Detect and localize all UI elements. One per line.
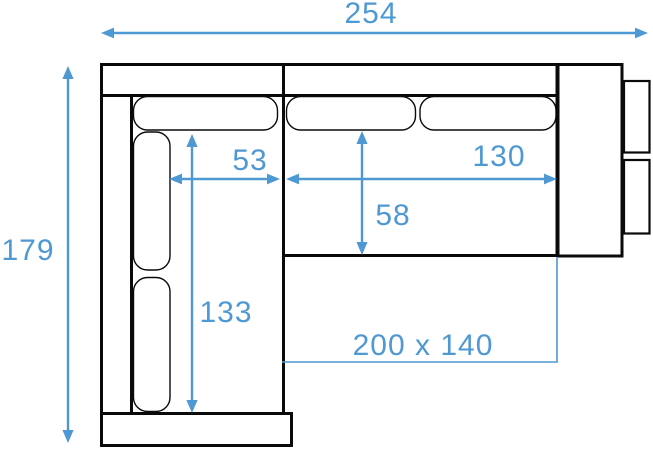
dimension-arrow-total-depth [62,66,73,443]
back-cushion-right [420,97,556,131]
arrowhead-left-icon [101,28,114,39]
arrowhead-right-icon [635,28,648,39]
sofa-dimension-drawing: 254 179 53 130 58 133 200 x 140 [0,0,653,451]
label-sleeping-area: 200 x 140 [353,329,494,362]
label-right-seat-width: 130 [472,140,525,173]
label-chaise-seat-length: 133 [199,296,252,329]
chaise-cushion-upper [134,132,171,270]
arrowhead-down-icon [62,430,73,443]
right-armrest [558,65,622,257]
back-cushion-left [134,97,278,131]
label-chaise-seat-width: 53 [232,144,267,177]
chaise-front-band [102,414,292,446]
label-total-width: 254 [344,0,397,30]
chaise-cushion-lower [134,278,171,412]
label-right-seat-depth: 58 [375,199,410,232]
back-cushion-middle [287,97,416,131]
label-total-depth: 179 [1,234,54,267]
armrest-side-cushion-bottom [624,160,650,234]
arrowhead-up-icon [62,66,73,79]
armrest-side-cushion-top [624,81,650,153]
sofa-structure [102,65,650,446]
sofa-dimension-diagram: 254 179 53 130 58 133 200 x 140 [0,0,653,451]
